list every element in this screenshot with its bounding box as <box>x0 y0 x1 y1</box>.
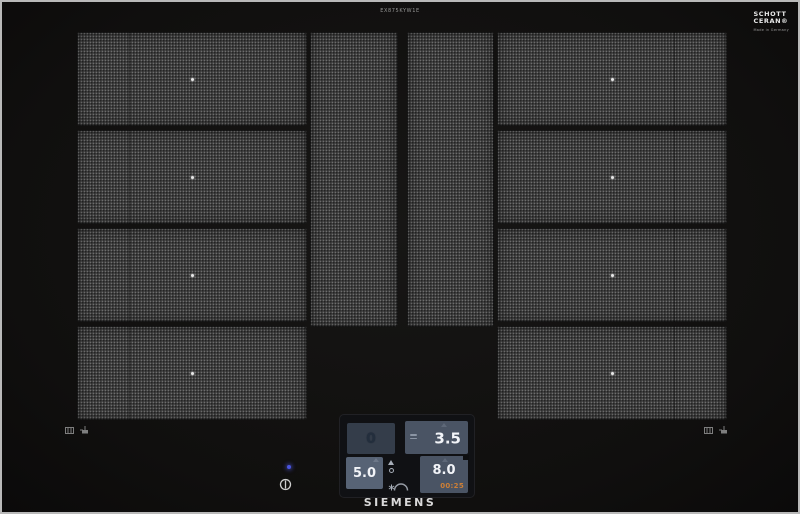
zone-center-dot <box>611 274 614 277</box>
power-symbol-icon[interactable] <box>279 476 292 495</box>
schott-ceran-subline: Made in Germany <box>753 29 789 33</box>
zone-display-front-right[interactable]: 8.0 00:25 <box>420 456 468 493</box>
zone-center-dot <box>611 176 614 179</box>
model-number: EX875KYW1E <box>2 8 798 14</box>
power-level-value: 3.5 <box>434 429 461 447</box>
arrow-up-icon[interactable] <box>388 460 394 465</box>
zone-center-dot <box>191 274 194 277</box>
cookware-markings-left <box>65 425 90 434</box>
zone-center-dot <box>191 176 194 179</box>
arc-icon <box>393 476 409 495</box>
equals-icon <box>410 434 417 441</box>
cooking-zone-left-3 <box>77 228 307 322</box>
arrow-up-icon <box>373 458 379 462</box>
tile-notch <box>463 455 469 460</box>
cookware-markings-right <box>704 425 729 434</box>
zone-center-dot <box>191 372 194 375</box>
power-level-value: 8.0 <box>420 463 468 478</box>
cooking-zone-right-3 <box>497 228 727 322</box>
cooking-zone-right-2 <box>497 130 727 224</box>
timer-value: 00:25 <box>440 482 464 490</box>
circle-icon[interactable] <box>389 468 394 473</box>
schott-ceran-logo: SCHOTT CERAN® Made in Germany <box>753 11 789 32</box>
power-indicator-led <box>287 465 291 469</box>
power-level-value: 0 <box>366 431 376 447</box>
cooking-zone-middle-2 <box>407 32 494 327</box>
schott-ceran-line2: CERAN® <box>753 18 789 25</box>
pan-icon <box>719 425 729 434</box>
zone-display-front-left[interactable]: 5.0 <box>346 457 383 489</box>
power-level-value: 5.0 <box>353 466 376 481</box>
cooking-zone-right-4 <box>497 326 727 420</box>
induction-coil-icon <box>65 426 74 434</box>
zone-display-rear-right[interactable]: 3.5 <box>405 421 468 454</box>
arrow-up-icon <box>441 423 447 427</box>
induction-coil-icon <box>704 426 713 434</box>
cooking-zone-left-2 <box>77 130 307 224</box>
zone-center-dot <box>191 78 194 81</box>
pan-icon <box>80 425 90 434</box>
cooking-zone-left-4 <box>77 326 307 420</box>
zone-display-rear-left[interactable]: 0 <box>347 423 395 454</box>
arrow-up-icon <box>442 458 448 462</box>
induction-hob: EX875KYW1E SCHOTT CERAN® Made in Germany <box>0 0 800 514</box>
siemens-logo: SIEMENS <box>2 496 798 509</box>
zone-center-dot <box>611 372 614 375</box>
cooking-zone-left-1 <box>77 32 307 126</box>
touch-control-panel[interactable]: 0 3.5 5.0 8.0 00:25 <box>340 415 474 497</box>
cooking-zone-right-1 <box>497 32 727 126</box>
zone-center-dot <box>611 78 614 81</box>
cooking-zone-middle-1 <box>310 32 398 327</box>
